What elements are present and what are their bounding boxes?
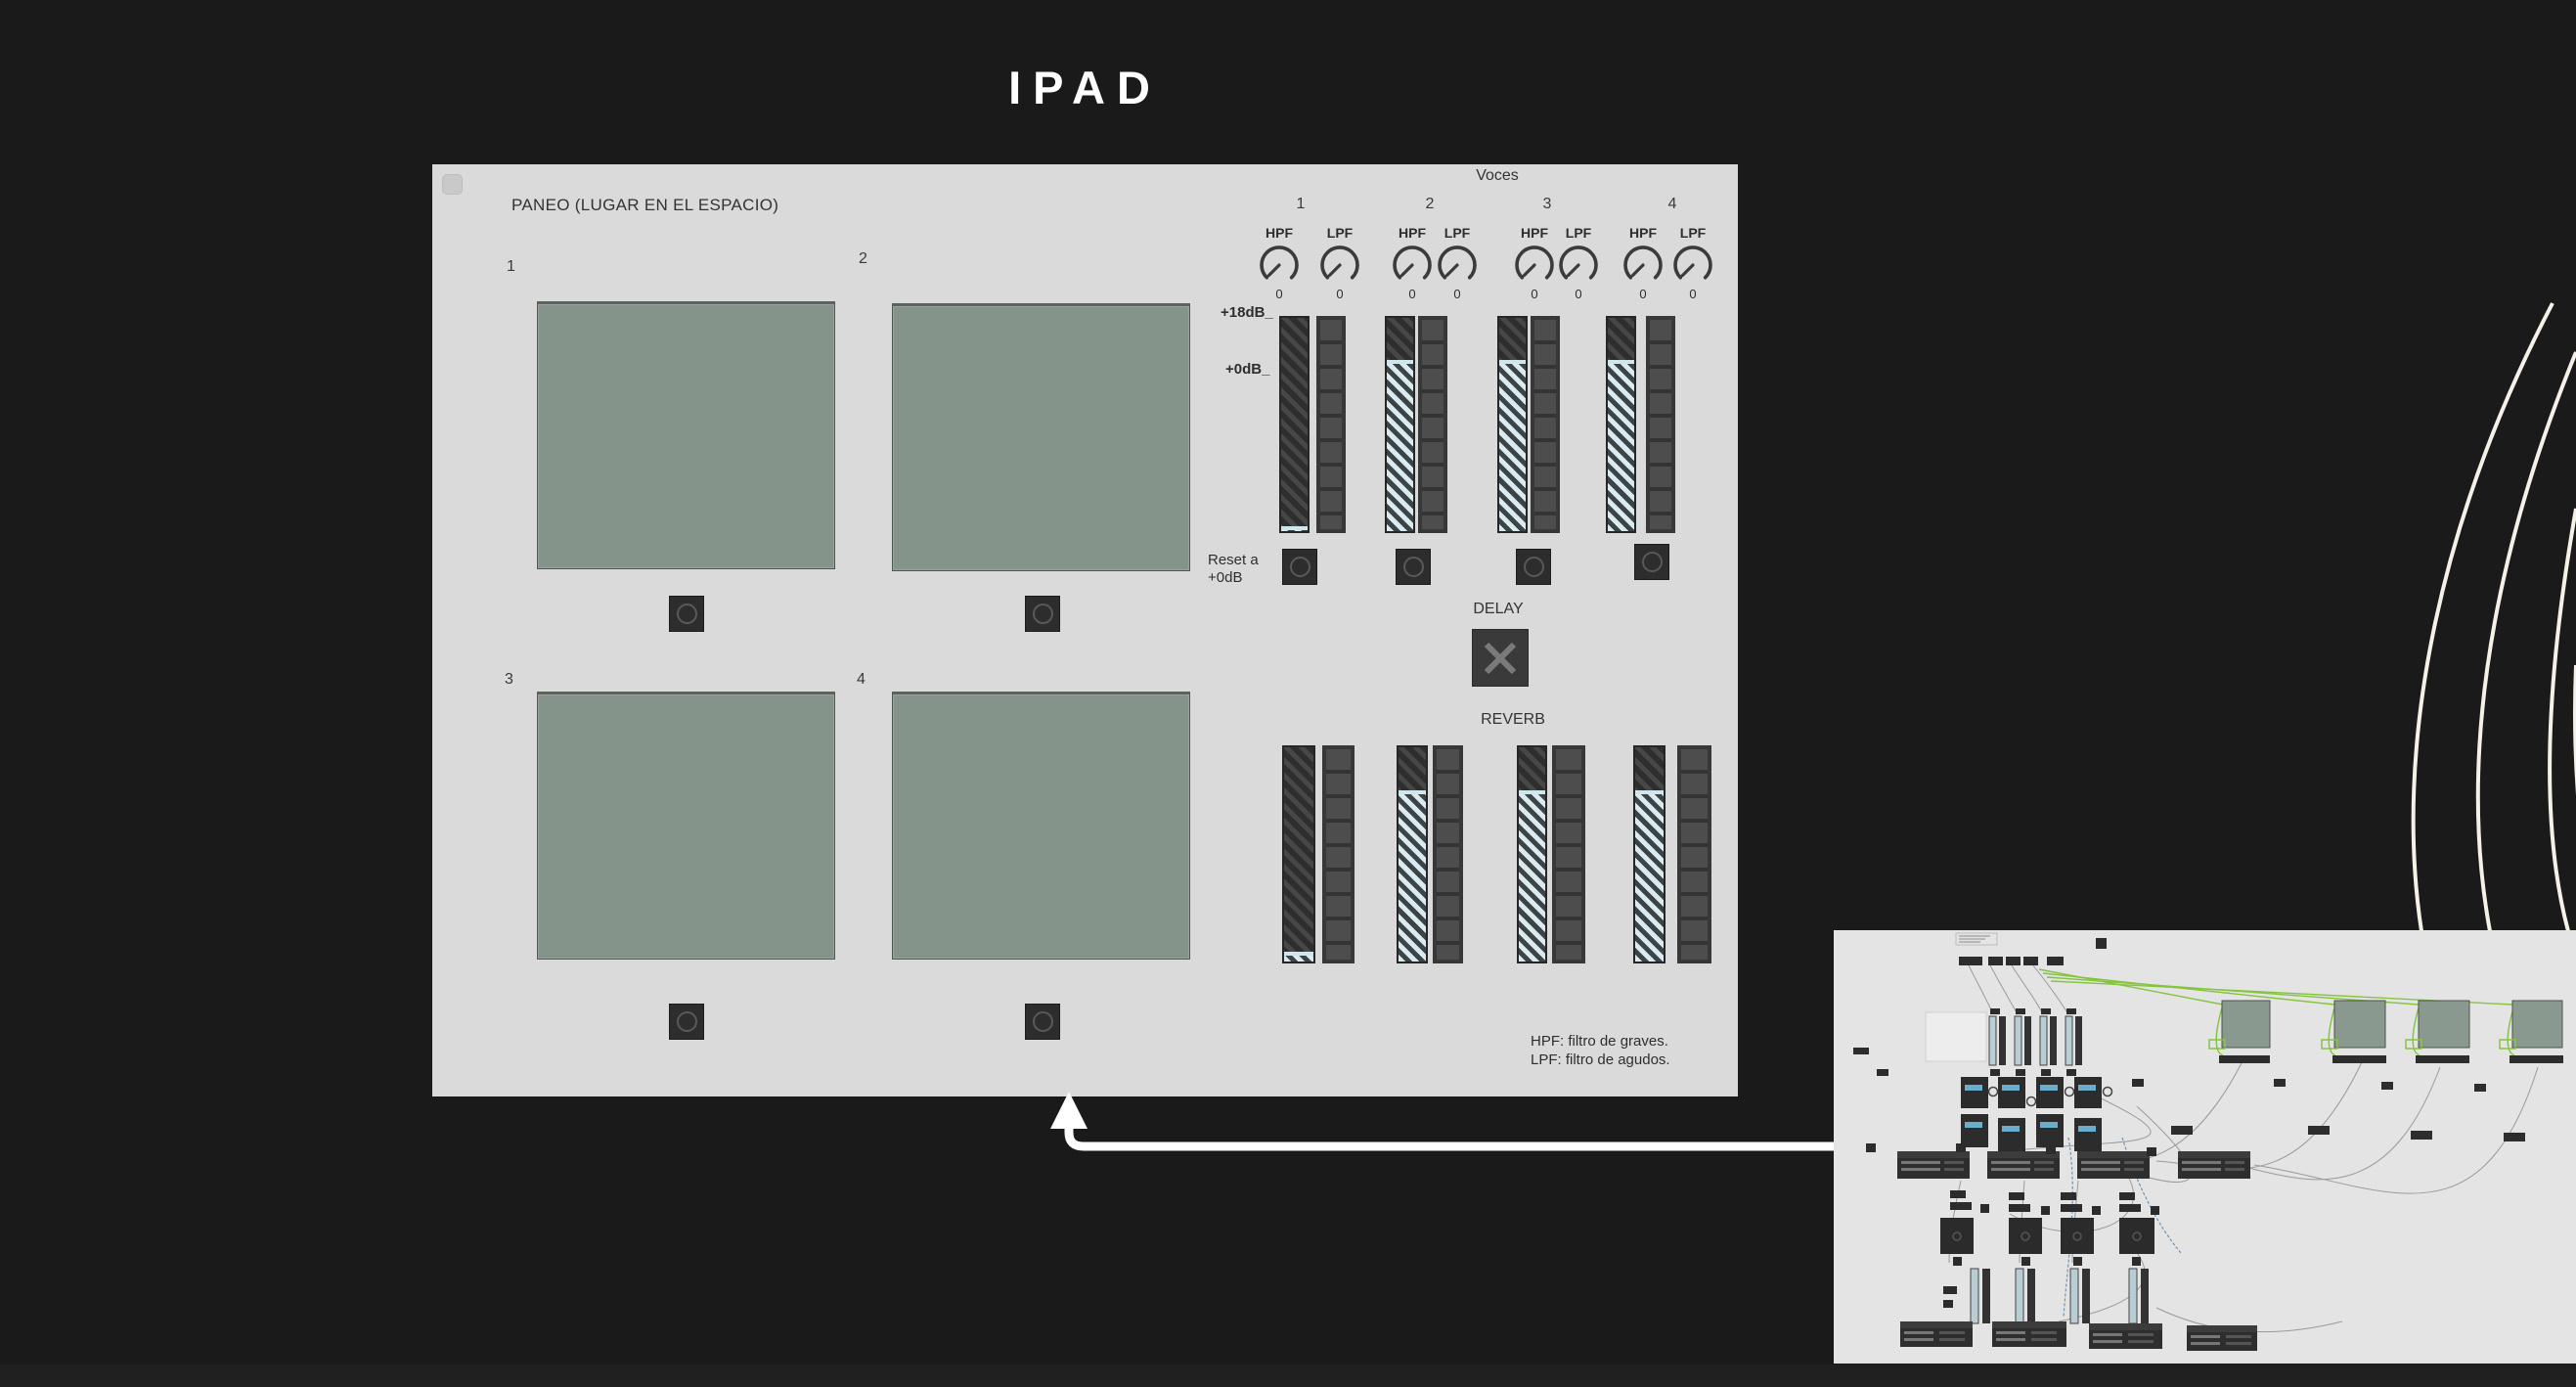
reverb-meter-v3 <box>1552 745 1585 963</box>
lpf-value-v1: 0 <box>1310 287 1369 301</box>
slider-fill <box>1284 952 1313 962</box>
lpf-label-v3: LPF <box>1549 225 1608 241</box>
button-ring <box>677 1011 697 1032</box>
filter-footnote: HPF: filtro de graves. LPF: filtro de ag… <box>1531 1032 1670 1069</box>
reverb-heading: REVERB <box>1464 711 1562 729</box>
reverb-meter-v4 <box>1677 745 1711 963</box>
pad-label-4: 4 <box>857 671 866 689</box>
slider-fill <box>1608 360 1634 531</box>
reset-button-v2[interactable] <box>1396 549 1431 585</box>
voice-number-2: 2 <box>1410 196 1449 213</box>
gain-slider-v1[interactable] <box>1279 316 1310 533</box>
pad-button-2[interactable] <box>1025 596 1060 632</box>
hpf-label-v1: HPF <box>1250 225 1309 241</box>
gain-slider-v2[interactable] <box>1385 316 1415 533</box>
lpf-knob-v1[interactable] <box>1318 244 1361 287</box>
voice-number-3: 3 <box>1528 196 1567 213</box>
xy-pad-3[interactable] <box>537 692 835 960</box>
button-ring <box>1403 557 1424 577</box>
page-title: IPAD <box>432 61 1738 114</box>
lpf-label-v4: LPF <box>1664 225 1722 241</box>
reset-label: Reset a +0dB <box>1208 552 1259 587</box>
scale-top-label: +18dB_ <box>1221 304 1273 321</box>
xy-pad-4[interactable] <box>892 692 1190 960</box>
gain-meter-v3 <box>1531 316 1560 533</box>
hpf-knob-v3[interactable] <box>1513 244 1556 287</box>
reverb-meter-v2 <box>1433 745 1463 963</box>
slider-fill <box>1387 360 1413 531</box>
lpf-label-v2: LPF <box>1428 225 1487 241</box>
lpf-value-v4: 0 <box>1664 287 1722 301</box>
xy-pad-1[interactable] <box>537 301 835 569</box>
reset-label-line2: +0dB <box>1208 569 1242 586</box>
slider-fill <box>1399 790 1426 962</box>
pad-label-1: 1 <box>507 258 515 276</box>
button-ring <box>1033 604 1053 624</box>
arrow-head <box>1050 1092 1088 1129</box>
hpf-knob-v1[interactable] <box>1258 244 1301 287</box>
footnote-line1: HPF: filtro de graves. <box>1531 1033 1668 1050</box>
button-ring <box>1524 557 1544 577</box>
pad-label-3: 3 <box>505 671 513 689</box>
arrow-stem <box>1069 1125 1848 1146</box>
lpf-value-v3: 0 <box>1549 287 1608 301</box>
voces-heading: Voces <box>1448 167 1546 185</box>
scale-zero-label: +0dB_ <box>1225 361 1269 378</box>
panel-corner-button[interactable] <box>442 174 463 195</box>
panel-heading: PANEO (LUGAR EN EL ESPACIO) <box>511 196 778 215</box>
reset-button-v1[interactable] <box>1282 549 1317 585</box>
reverb-slider-v3[interactable] <box>1517 745 1547 963</box>
window-bottom-strip <box>0 1365 2576 1387</box>
voice-number-4: 4 <box>1653 196 1692 213</box>
arrow-connector <box>1037 1084 1848 1172</box>
lpf-knob-v3[interactable] <box>1557 244 1600 287</box>
pad-button-4[interactable] <box>1025 1004 1060 1040</box>
button-ring <box>677 604 697 624</box>
reverb-slider-v2[interactable] <box>1397 745 1428 963</box>
hpf-knob-v4[interactable] <box>1621 244 1665 287</box>
slider-fill <box>1499 360 1526 531</box>
hpf-knob-v2[interactable] <box>1391 244 1434 287</box>
reverb-slider-v1[interactable] <box>1282 745 1315 963</box>
lpf-knob-v4[interactable] <box>1671 244 1714 287</box>
decorative-curves <box>2249 293 2576 939</box>
gain-meter-v2 <box>1418 316 1447 533</box>
delay-heading: DELAY <box>1449 601 1547 618</box>
footnote-line2: LPF: filtro de agudos. <box>1531 1051 1670 1068</box>
gain-slider-v3[interactable] <box>1497 316 1528 533</box>
reset-button-v3[interactable] <box>1516 549 1551 585</box>
reset-label-line1: Reset a <box>1208 552 1259 568</box>
patch-thumbnail <box>1834 930 2576 1364</box>
hpf-value-v1: 0 <box>1250 287 1309 301</box>
lpf-value-v2: 0 <box>1428 287 1487 301</box>
controller-panel: PANEO (LUGAR EN EL ESPACIO) 1 2 3 4 Voce… <box>432 164 1738 1096</box>
lpf-label-v1: LPF <box>1310 225 1369 241</box>
gain-meter-v4 <box>1646 316 1675 533</box>
reset-button-v4[interactable] <box>1634 544 1669 580</box>
pad-button-1[interactable] <box>669 596 704 632</box>
patch-thumbnail-window[interactable] <box>1834 930 2576 1364</box>
slider-fill <box>1519 790 1545 962</box>
reverb-meter-v1 <box>1322 745 1355 963</box>
reverb-slider-v4[interactable] <box>1633 745 1666 963</box>
pad-button-3[interactable] <box>669 1004 704 1040</box>
button-ring <box>1290 557 1310 577</box>
button-ring <box>1642 552 1663 572</box>
lpf-knob-v2[interactable] <box>1436 244 1479 287</box>
x-icon <box>1482 640 1519 677</box>
button-ring <box>1033 1011 1053 1032</box>
delay-toggle[interactable] <box>1472 629 1529 687</box>
slider-fill <box>1281 526 1308 531</box>
xy-pad-2[interactable] <box>892 303 1190 571</box>
slider-fill <box>1635 790 1664 962</box>
pad-label-2: 2 <box>859 250 867 268</box>
gain-slider-v4[interactable] <box>1606 316 1636 533</box>
voice-number-1: 1 <box>1281 196 1320 213</box>
gain-meter-v1 <box>1316 316 1346 533</box>
